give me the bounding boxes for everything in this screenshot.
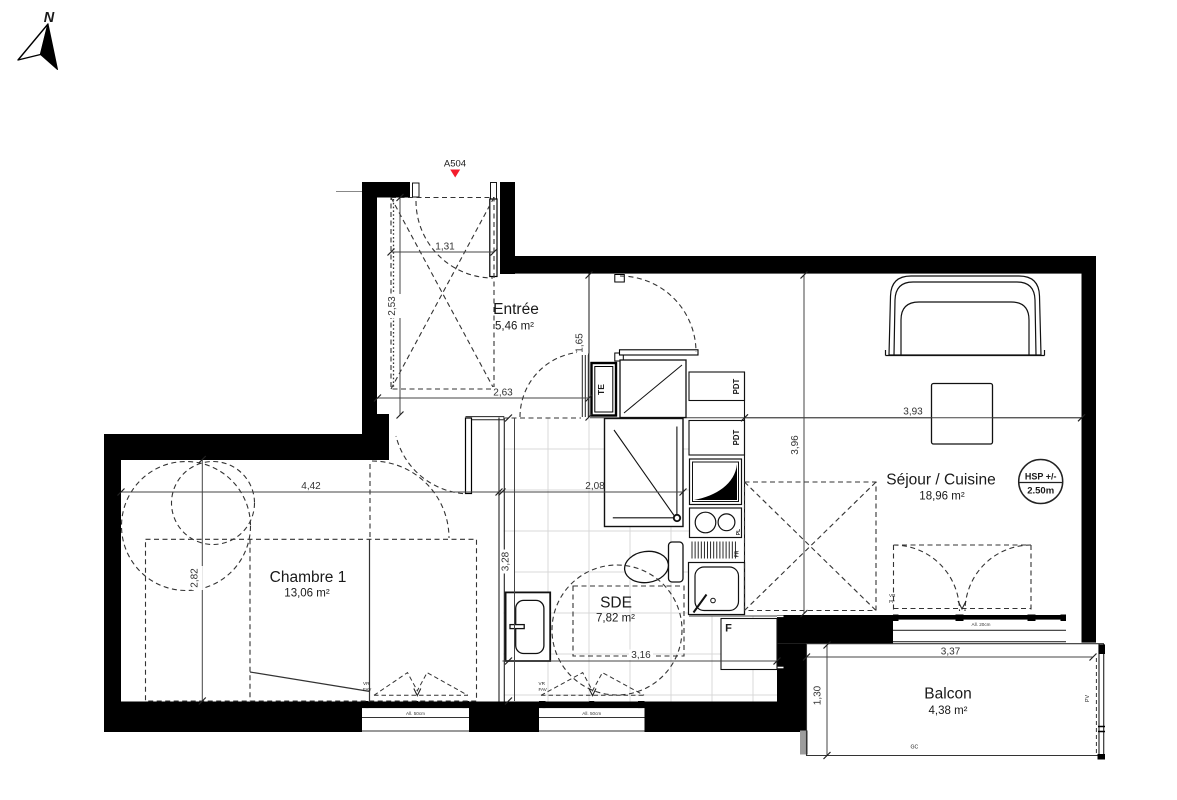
svg-text:VR: VR — [889, 593, 896, 598]
svg-text:5,46 m²: 5,46 m² — [495, 321, 534, 333]
svg-text:F: F — [725, 623, 732, 635]
svg-text:2,53: 2,53 — [387, 296, 398, 316]
svg-text:2,08: 2,08 — [585, 481, 605, 492]
svg-text:2,63: 2,63 — [493, 388, 513, 399]
svg-text:Balcon: Balcon — [924, 686, 971, 703]
svg-text:4,38 m²: 4,38 m² — [929, 705, 968, 717]
svg-text:3,96: 3,96 — [790, 435, 801, 455]
svg-text:VR: VR — [363, 681, 370, 686]
svg-text:A504: A504 — [444, 159, 466, 170]
svg-text:3,28: 3,28 — [501, 551, 512, 571]
svg-text:GC: GC — [911, 745, 919, 751]
svg-text:N: N — [44, 10, 55, 26]
svg-text:HSP +/-: HSP +/- — [1025, 472, 1057, 482]
svg-text:13,06 m²: 13,06 m² — [284, 588, 330, 600]
svg-text:Entrée: Entrée — [493, 301, 539, 318]
svg-text:FAV: FAV — [363, 687, 372, 692]
svg-text:2,82: 2,82 — [189, 568, 200, 588]
svg-text:PDT: PDT — [732, 429, 741, 445]
svg-text:4,42: 4,42 — [301, 481, 321, 492]
svg-text:All. 50cm: All. 50cm — [406, 711, 425, 716]
svg-text:PV: PV — [1085, 695, 1091, 702]
svg-text:Chambre 1: Chambre 1 — [270, 569, 347, 586]
svg-text:All. 50cm: All. 50cm — [582, 711, 601, 716]
svg-text:7,82 m²: 7,82 m² — [596, 613, 635, 625]
svg-text:All. 20cm: All. 20cm — [972, 622, 991, 627]
svg-text:2.50m: 2.50m — [1027, 486, 1054, 497]
svg-text:1,31: 1,31 — [435, 242, 455, 253]
svg-text:SDE: SDE — [600, 595, 632, 612]
svg-text:1,65: 1,65 — [575, 333, 586, 353]
svg-text:FR: FR — [735, 550, 741, 557]
svg-text:PF: PF — [889, 599, 895, 604]
svg-text:Séjour / Cuisine: Séjour / Cuisine — [886, 472, 995, 489]
svg-text:18,96 m²: 18,96 m² — [919, 491, 965, 503]
svg-text:PL: PL — [736, 529, 742, 535]
svg-text:PDT: PDT — [732, 378, 741, 394]
svg-text:3,37: 3,37 — [941, 647, 961, 658]
svg-text:3,16: 3,16 — [631, 650, 651, 661]
svg-text:3,93: 3,93 — [903, 407, 923, 418]
svg-text:TE: TE — [596, 384, 606, 395]
svg-text:1,30: 1,30 — [813, 685, 824, 705]
svg-text:VR: VR — [539, 681, 546, 686]
svg-text:FAV: FAV — [539, 687, 548, 692]
